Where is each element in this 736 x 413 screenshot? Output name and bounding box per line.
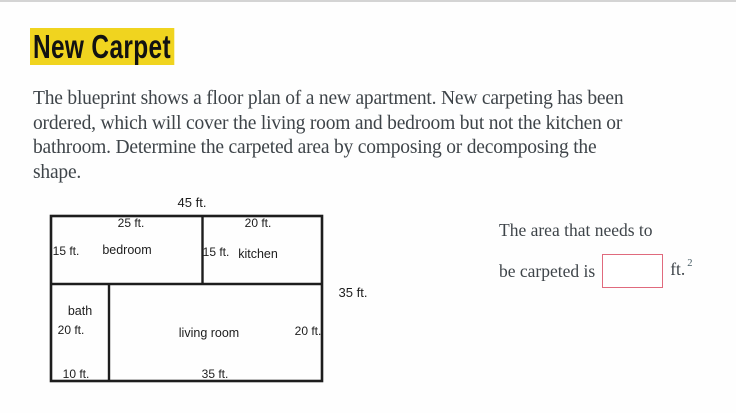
title-container: New Carpet xyxy=(30,28,225,65)
kitchen-height-label: 15 ft. xyxy=(203,245,230,259)
kitchen-width-label: 20 ft. xyxy=(245,216,272,230)
living-room-width-label: 35 ft. xyxy=(202,367,229,381)
description-line: bathroom. Determine the carpeted area by… xyxy=(33,136,705,161)
answer-panel: The area that needs to be carpeted is ft… xyxy=(499,220,691,288)
answer-prompt-line1: The area that needs to xyxy=(499,220,691,240)
bath-width-label: 10 ft. xyxy=(63,367,90,381)
bath-height-label: 20 ft. xyxy=(58,323,85,337)
page-title: New Carpet xyxy=(30,28,174,65)
bedroom-name-label: bedroom xyxy=(102,243,151,257)
unit-text: ft. xyxy=(670,259,685,279)
living-room-name-label: living room xyxy=(179,326,239,340)
overall-width-label: 45 ft. xyxy=(178,195,207,210)
bath-name-label: bath xyxy=(68,304,92,318)
description-line: The blueprint shows a floor plan of a ne… xyxy=(33,87,705,112)
bedroom-height-label: 15 ft. xyxy=(53,244,80,258)
answer-row: be carpeted is ft.2 xyxy=(499,254,691,288)
answer-prompt-line2: be carpeted is xyxy=(499,261,595,281)
description-line: shape. xyxy=(33,161,705,186)
top-border-strip xyxy=(0,0,736,2)
unit-label: ft.2 xyxy=(670,259,690,283)
living-room-height-label: 20 ft. xyxy=(295,324,322,338)
area-input[interactable] xyxy=(602,254,663,288)
problem-description: The blueprint shows a floor plan of a ne… xyxy=(33,87,705,185)
bedroom-width-label: 25 ft. xyxy=(118,216,145,230)
unit-exponent: 2 xyxy=(687,258,692,269)
worksheet-page: New Carpet The blueprint shows a floor p… xyxy=(0,0,736,413)
kitchen-name-label: kitchen xyxy=(238,247,278,261)
floorplan-outer-wall xyxy=(51,216,322,381)
description-line: ordered, which will cover the living roo… xyxy=(33,112,705,137)
overall-height-label: 35 ft. xyxy=(339,285,368,300)
